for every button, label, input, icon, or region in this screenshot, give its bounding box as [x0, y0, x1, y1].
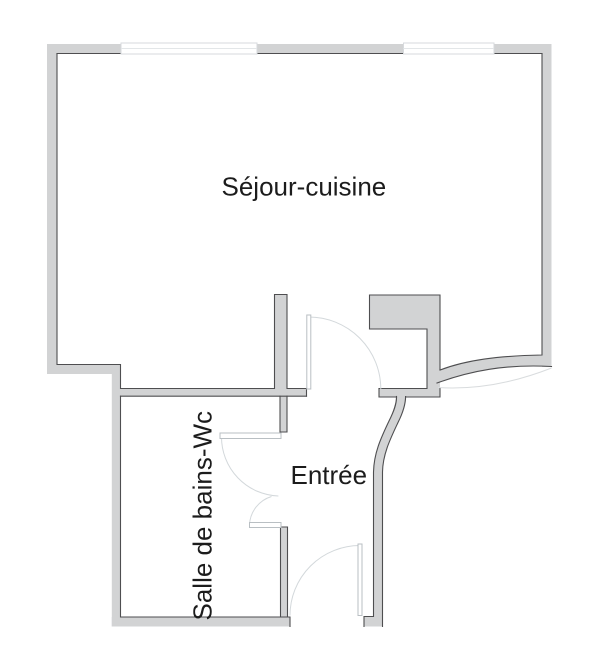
svg-text:Salle de bains-Wc: Salle de bains-Wc	[188, 411, 218, 621]
svg-text:Entrée: Entrée	[291, 460, 368, 490]
svg-text:Séjour-cuisine: Séjour-cuisine	[222, 172, 387, 202]
